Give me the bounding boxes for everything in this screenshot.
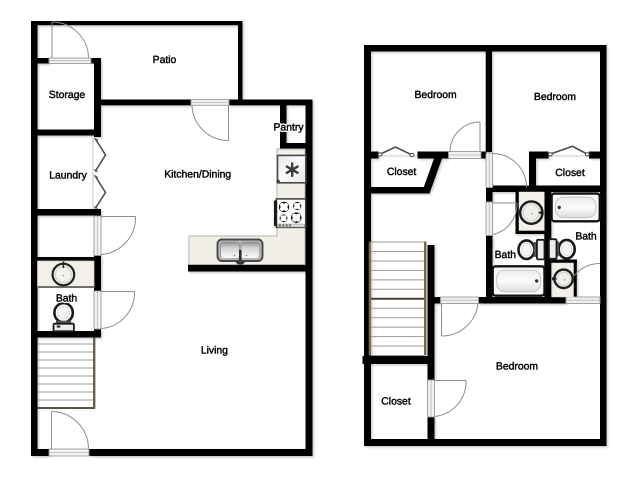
svg-text:Bedroom: Bedroom <box>534 92 576 103</box>
svg-text:Closet: Closet <box>555 168 585 179</box>
svg-text:Bath: Bath <box>56 293 78 304</box>
svg-text:Closet: Closet <box>381 397 411 408</box>
svg-text:Laundry: Laundry <box>49 171 87 182</box>
svg-text:Bath: Bath <box>575 232 597 243</box>
svg-text:Storage: Storage <box>49 90 86 101</box>
svg-text:Bedroom: Bedroom <box>496 362 538 373</box>
svg-text:Bedroom: Bedroom <box>415 90 457 101</box>
svg-text:Patio: Patio <box>153 55 177 66</box>
svg-text:Pantry: Pantry <box>273 123 304 134</box>
svg-text:Kitchen/Dining: Kitchen/Dining <box>164 170 231 181</box>
svg-text:Bath: Bath <box>495 250 517 261</box>
svg-text:Closet: Closet <box>387 167 417 178</box>
svg-text:Living: Living <box>201 346 228 357</box>
